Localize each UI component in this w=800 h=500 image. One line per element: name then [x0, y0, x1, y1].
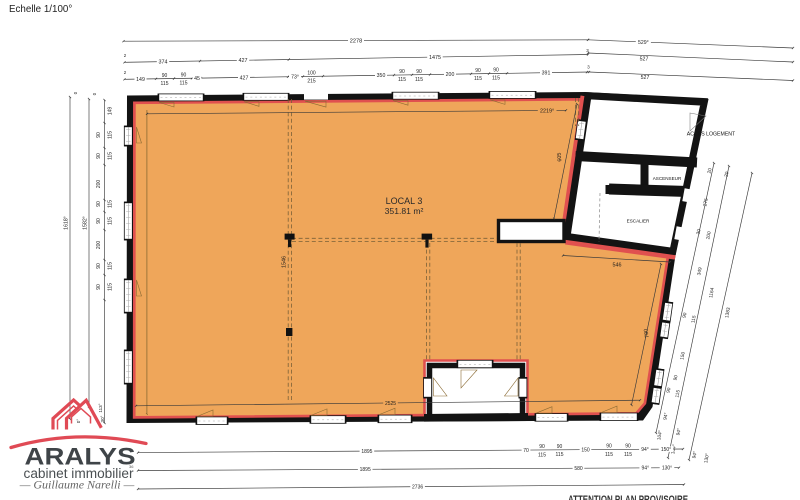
svg-text:527: 527 — [640, 57, 649, 63]
svg-text:2525: 2525 — [385, 401, 396, 407]
svg-text:LOCAL 3: LOCAL 3 — [386, 196, 423, 206]
svg-text:115: 115 — [605, 452, 613, 458]
svg-text:115: 115 — [108, 217, 114, 225]
svg-text:200: 200 — [446, 72, 455, 78]
svg-text:2278: 2278 — [350, 39, 362, 45]
svg-text:1582°: 1582° — [83, 216, 89, 230]
svg-text:90: 90 — [96, 218, 102, 224]
svg-text:ACCES LOGEMENT: ACCES LOGEMENT — [687, 132, 736, 138]
svg-text:90: 90 — [399, 69, 405, 75]
svg-text:100: 100 — [307, 71, 316, 77]
svg-text:130°: 130° — [662, 466, 672, 472]
svg-text:90: 90 — [96, 153, 102, 159]
svg-text:427: 427 — [240, 75, 249, 81]
svg-text:0°: 0° — [76, 419, 81, 423]
svg-text:1618°: 1618° — [64, 216, 70, 230]
svg-text:149: 149 — [108, 107, 114, 116]
svg-text:115: 115 — [108, 131, 114, 139]
svg-text:115: 115 — [474, 76, 482, 82]
svg-text:— Guillaume Narelli —: — Guillaume Narelli — — [19, 477, 135, 491]
svg-text:90: 90 — [96, 284, 102, 290]
svg-text:90: 90 — [557, 444, 563, 450]
svg-text:115: 115 — [161, 81, 169, 87]
svg-text:115: 115 — [108, 152, 114, 160]
svg-text:30°: 30° — [100, 415, 105, 422]
svg-text:374: 374 — [159, 60, 168, 66]
svg-text:Echelle 1/100°: Echelle 1/100° — [9, 4, 72, 15]
svg-text:94°: 94° — [642, 466, 650, 472]
svg-text:90: 90 — [96, 132, 102, 138]
svg-text:150: 150 — [581, 447, 590, 453]
svg-text:200: 200 — [96, 180, 102, 189]
svg-text:ATTENTION PLAN PROVISOIRE: ATTENTION PLAN PROVISOIRE — [568, 494, 688, 500]
svg-text:350: 350 — [377, 73, 386, 79]
svg-text:527: 527 — [641, 75, 650, 81]
svg-text:2219°: 2219° — [540, 108, 554, 114]
svg-text:90: 90 — [625, 444, 631, 450]
svg-text:605: 605 — [557, 152, 564, 161]
svg-text:115: 115 — [492, 76, 500, 82]
svg-text:1895: 1895 — [360, 467, 371, 473]
svg-text:200: 200 — [96, 241, 102, 250]
svg-text:94°: 94° — [641, 447, 649, 453]
svg-text:115: 115 — [538, 452, 546, 458]
svg-text:ESCALIER: ESCALIER — [627, 219, 650, 224]
svg-text:215: 215 — [307, 79, 316, 85]
svg-text:90: 90 — [493, 68, 499, 74]
svg-text:115: 115 — [108, 283, 114, 291]
svg-text:115: 115 — [108, 262, 114, 270]
svg-text:45: 45 — [194, 76, 200, 82]
svg-text:ASCENSEUR: ASCENSEUR — [653, 176, 682, 181]
svg-text:90: 90 — [606, 444, 612, 450]
svg-text:90: 90 — [539, 444, 545, 450]
svg-text:90: 90 — [96, 263, 102, 269]
svg-text:2736: 2736 — [412, 485, 423, 491]
svg-text:73°: 73° — [291, 75, 299, 81]
svg-text:90: 90 — [162, 73, 168, 79]
svg-text:150°: 150° — [661, 447, 671, 453]
svg-text:115: 115 — [398, 77, 406, 83]
svg-text:1895: 1895 — [361, 449, 372, 455]
svg-text:115: 115 — [556, 452, 564, 458]
svg-text:149: 149 — [136, 77, 145, 83]
svg-text:115: 115 — [180, 81, 188, 87]
svg-text:351.81 m²: 351.81 m² — [385, 206, 424, 216]
svg-text:90: 90 — [475, 68, 481, 74]
svg-text:391: 391 — [542, 71, 551, 77]
svg-text:580: 580 — [574, 466, 583, 472]
svg-text:94°: 94° — [662, 412, 669, 420]
svg-text:70: 70 — [523, 448, 529, 454]
svg-text:427: 427 — [239, 58, 248, 64]
svg-text:1546: 1546 — [282, 256, 288, 268]
svg-text:1475: 1475 — [429, 55, 441, 61]
svg-text:115: 115 — [415, 77, 423, 83]
svg-text:94°: 94° — [691, 451, 698, 459]
svg-text:90: 90 — [96, 201, 102, 207]
svg-text:113°: 113° — [98, 403, 103, 412]
svg-text:115: 115 — [624, 452, 632, 458]
svg-text:90: 90 — [181, 73, 187, 79]
svg-text:546: 546 — [613, 263, 622, 269]
svg-text:90: 90 — [416, 69, 422, 75]
svg-text:529°: 529° — [638, 40, 649, 46]
svg-text:94°: 94° — [675, 428, 682, 436]
svg-text:115: 115 — [108, 200, 114, 208]
